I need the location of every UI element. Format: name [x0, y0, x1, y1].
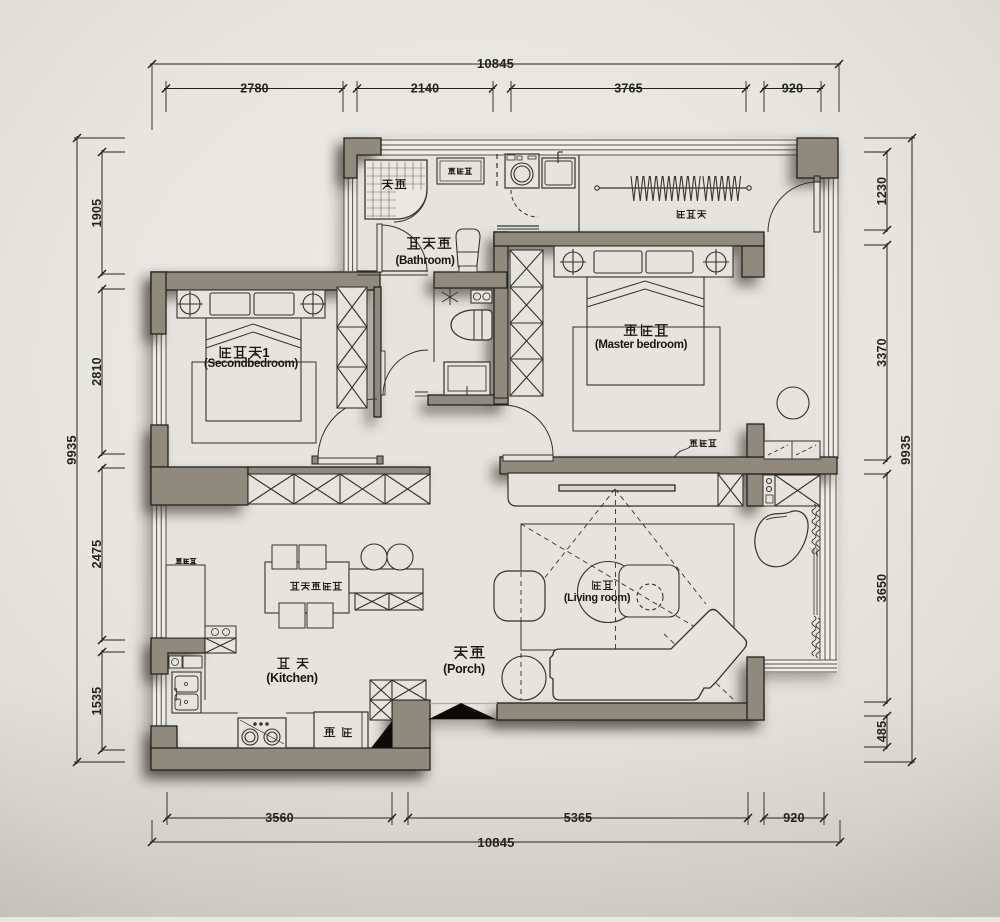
svg-text:3370: 3370 [875, 338, 889, 367]
svg-text:(Kitchen): (Kitchen) [266, 671, 318, 685]
svg-text:920: 920 [782, 82, 803, 96]
svg-text:(Bathroom): (Bathroom) [396, 255, 455, 267]
svg-text:1535: 1535 [90, 687, 104, 716]
svg-text:9935: 9935 [898, 435, 913, 465]
svg-text:2810: 2810 [90, 357, 104, 386]
svg-text:1905: 1905 [90, 199, 104, 228]
svg-text:485: 485 [875, 721, 889, 742]
svg-text:3765: 3765 [614, 82, 643, 96]
svg-text:(Porch): (Porch) [443, 662, 485, 676]
svg-text:3650: 3650 [875, 574, 889, 603]
svg-text:1230: 1230 [875, 177, 889, 206]
svg-text:2780: 2780 [240, 82, 269, 96]
svg-text:(Master bedroom): (Master bedroom) [595, 339, 688, 351]
svg-text:(Secondbedroom): (Secondbedroom) [204, 358, 298, 370]
svg-text:3560: 3560 [265, 811, 294, 825]
svg-text:9935: 9935 [64, 435, 79, 465]
svg-text:10845: 10845 [477, 835, 514, 850]
svg-text:(Living room): (Living room) [564, 592, 631, 604]
svg-text:2140: 2140 [411, 82, 440, 96]
svg-text:5365: 5365 [564, 811, 593, 825]
svg-text:10845: 10845 [477, 56, 514, 71]
svg-text:2475: 2475 [90, 540, 104, 569]
svg-text:920: 920 [783, 811, 804, 825]
